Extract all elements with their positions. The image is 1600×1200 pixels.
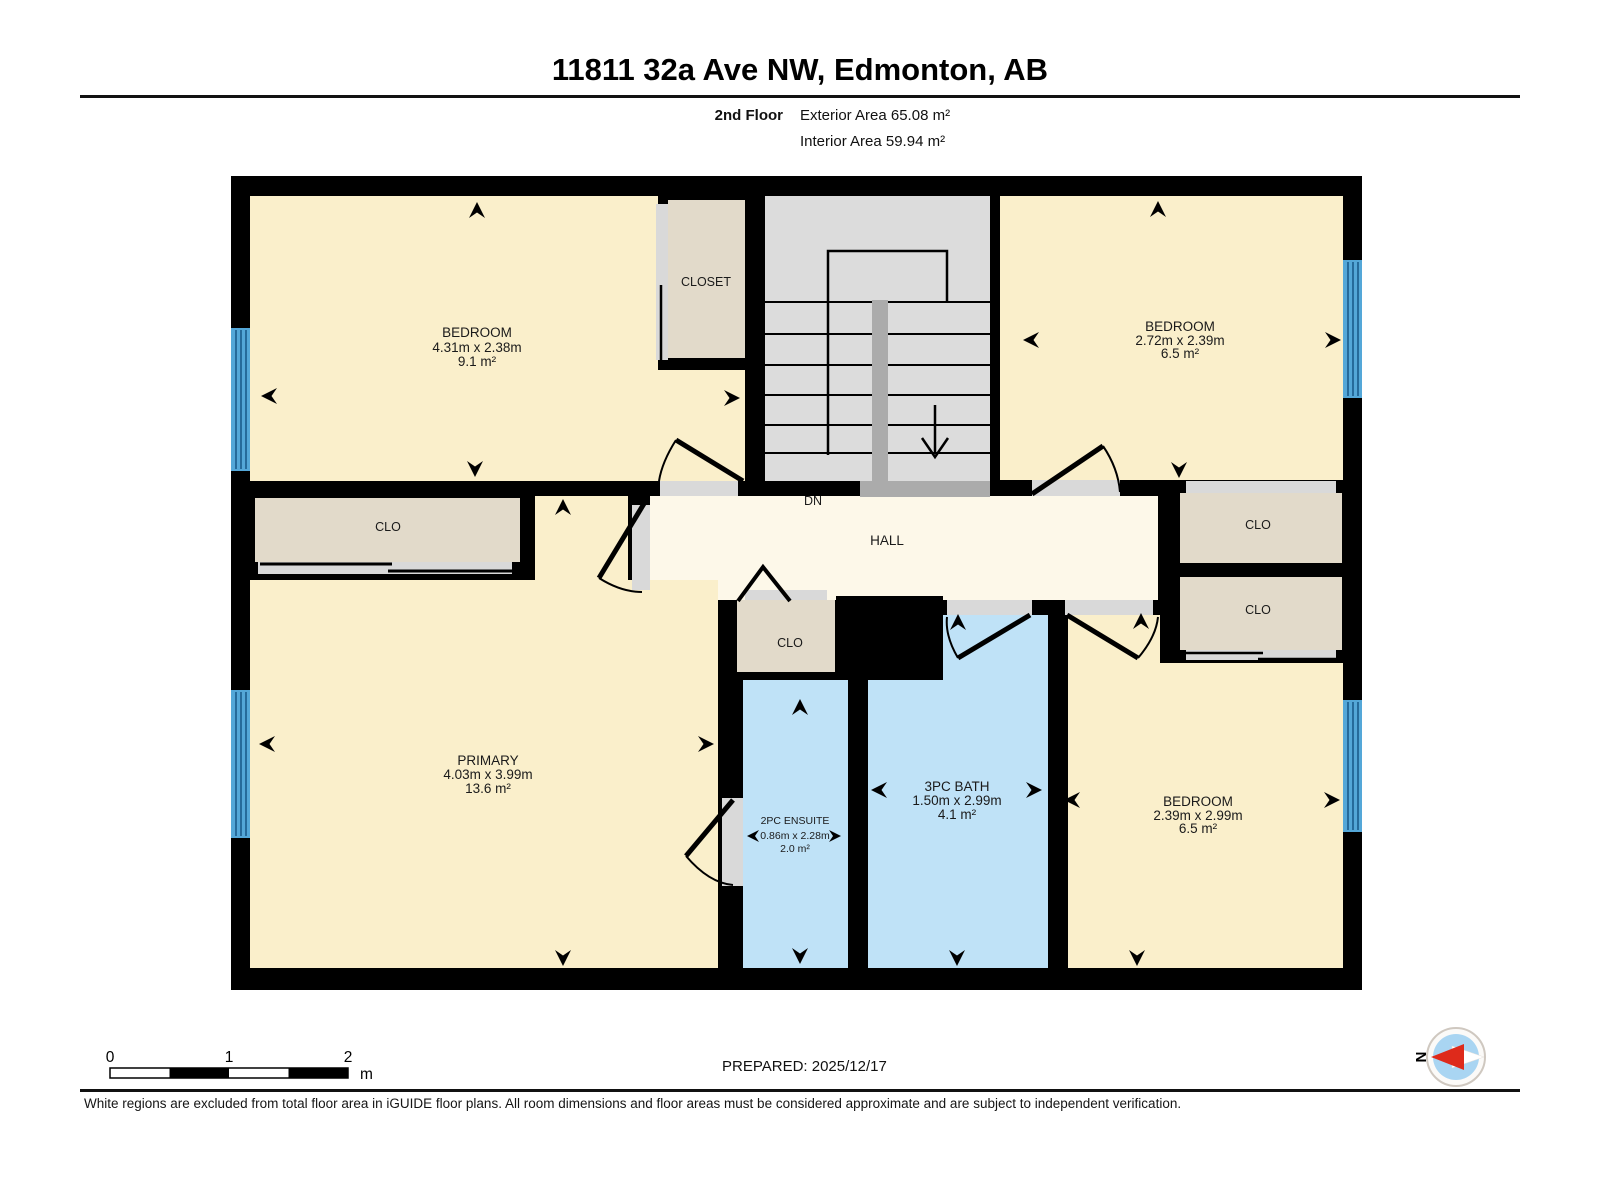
bath-dims: 1.50m x 2.99m — [912, 793, 1001, 808]
floorplan-drawing: BEDROOM 4.31m x 2.38m 9.1 m² CLOSET BEDR… — [0, 0, 1600, 1200]
bedroom-tl-area: 9.1 m² — [458, 354, 497, 369]
clo-right-lower-label: CLO — [1245, 603, 1271, 617]
clo-center-label: CLO — [777, 636, 803, 650]
primary-area: 13.6 m² — [465, 781, 511, 796]
primary-name: PRIMARY — [457, 753, 518, 768]
bath-area: 4.1 m² — [938, 807, 977, 822]
floorplan-page: 11811 32a Ave NW, Edmonton, AB 2nd Floor… — [0, 0, 1600, 1200]
ensuite-area: 2.0 m² — [780, 843, 810, 855]
stairs-dn-label: DN — [804, 494, 822, 508]
scale-1: 1 — [225, 1049, 234, 1066]
ensuite-dims: 0.86m x 2.28m — [760, 830, 830, 842]
scale-2: 2 — [344, 1049, 353, 1066]
bedroom-br-name: BEDROOM — [1163, 794, 1233, 809]
chase-block — [836, 596, 943, 680]
room-hall — [650, 496, 1158, 600]
bedroom-tr-area: 6.5 m² — [1161, 346, 1200, 361]
primary-dims: 4.03m x 3.99m — [443, 767, 532, 782]
footer-rule — [80, 1089, 1520, 1092]
ensuite-name: 2PC ENSUITE — [761, 815, 830, 827]
clo-right-upper-label: CLO — [1245, 518, 1271, 532]
scale-unit: m — [360, 1066, 373, 1083]
compass-icon: N — [1412, 1028, 1485, 1086]
bedroom-tl-name: BEDROOM — [442, 325, 512, 340]
scale-bar: 0 1 2 m — [106, 1049, 373, 1083]
bedroom-tl-dims: 4.31m x 2.38m — [432, 340, 521, 355]
scale-0: 0 — [106, 1049, 115, 1066]
prepared-date: PREPARED: 2025/12/17 — [722, 1058, 887, 1075]
room-bedroom-br — [1068, 615, 1343, 968]
hall-label: HALL — [870, 533, 904, 548]
bedroom-tr-name: BEDROOM — [1145, 319, 1215, 334]
closet-top-label: CLOSET — [681, 275, 731, 289]
compass-north-label: N — [1412, 1052, 1429, 1063]
bath-name: 3PC BATH — [924, 779, 989, 794]
disclaimer-text: White regions are excluded from total fl… — [84, 1096, 1181, 1111]
clo-left-label: CLO — [375, 520, 401, 534]
bedroom-br-area: 6.5 m² — [1179, 821, 1218, 836]
